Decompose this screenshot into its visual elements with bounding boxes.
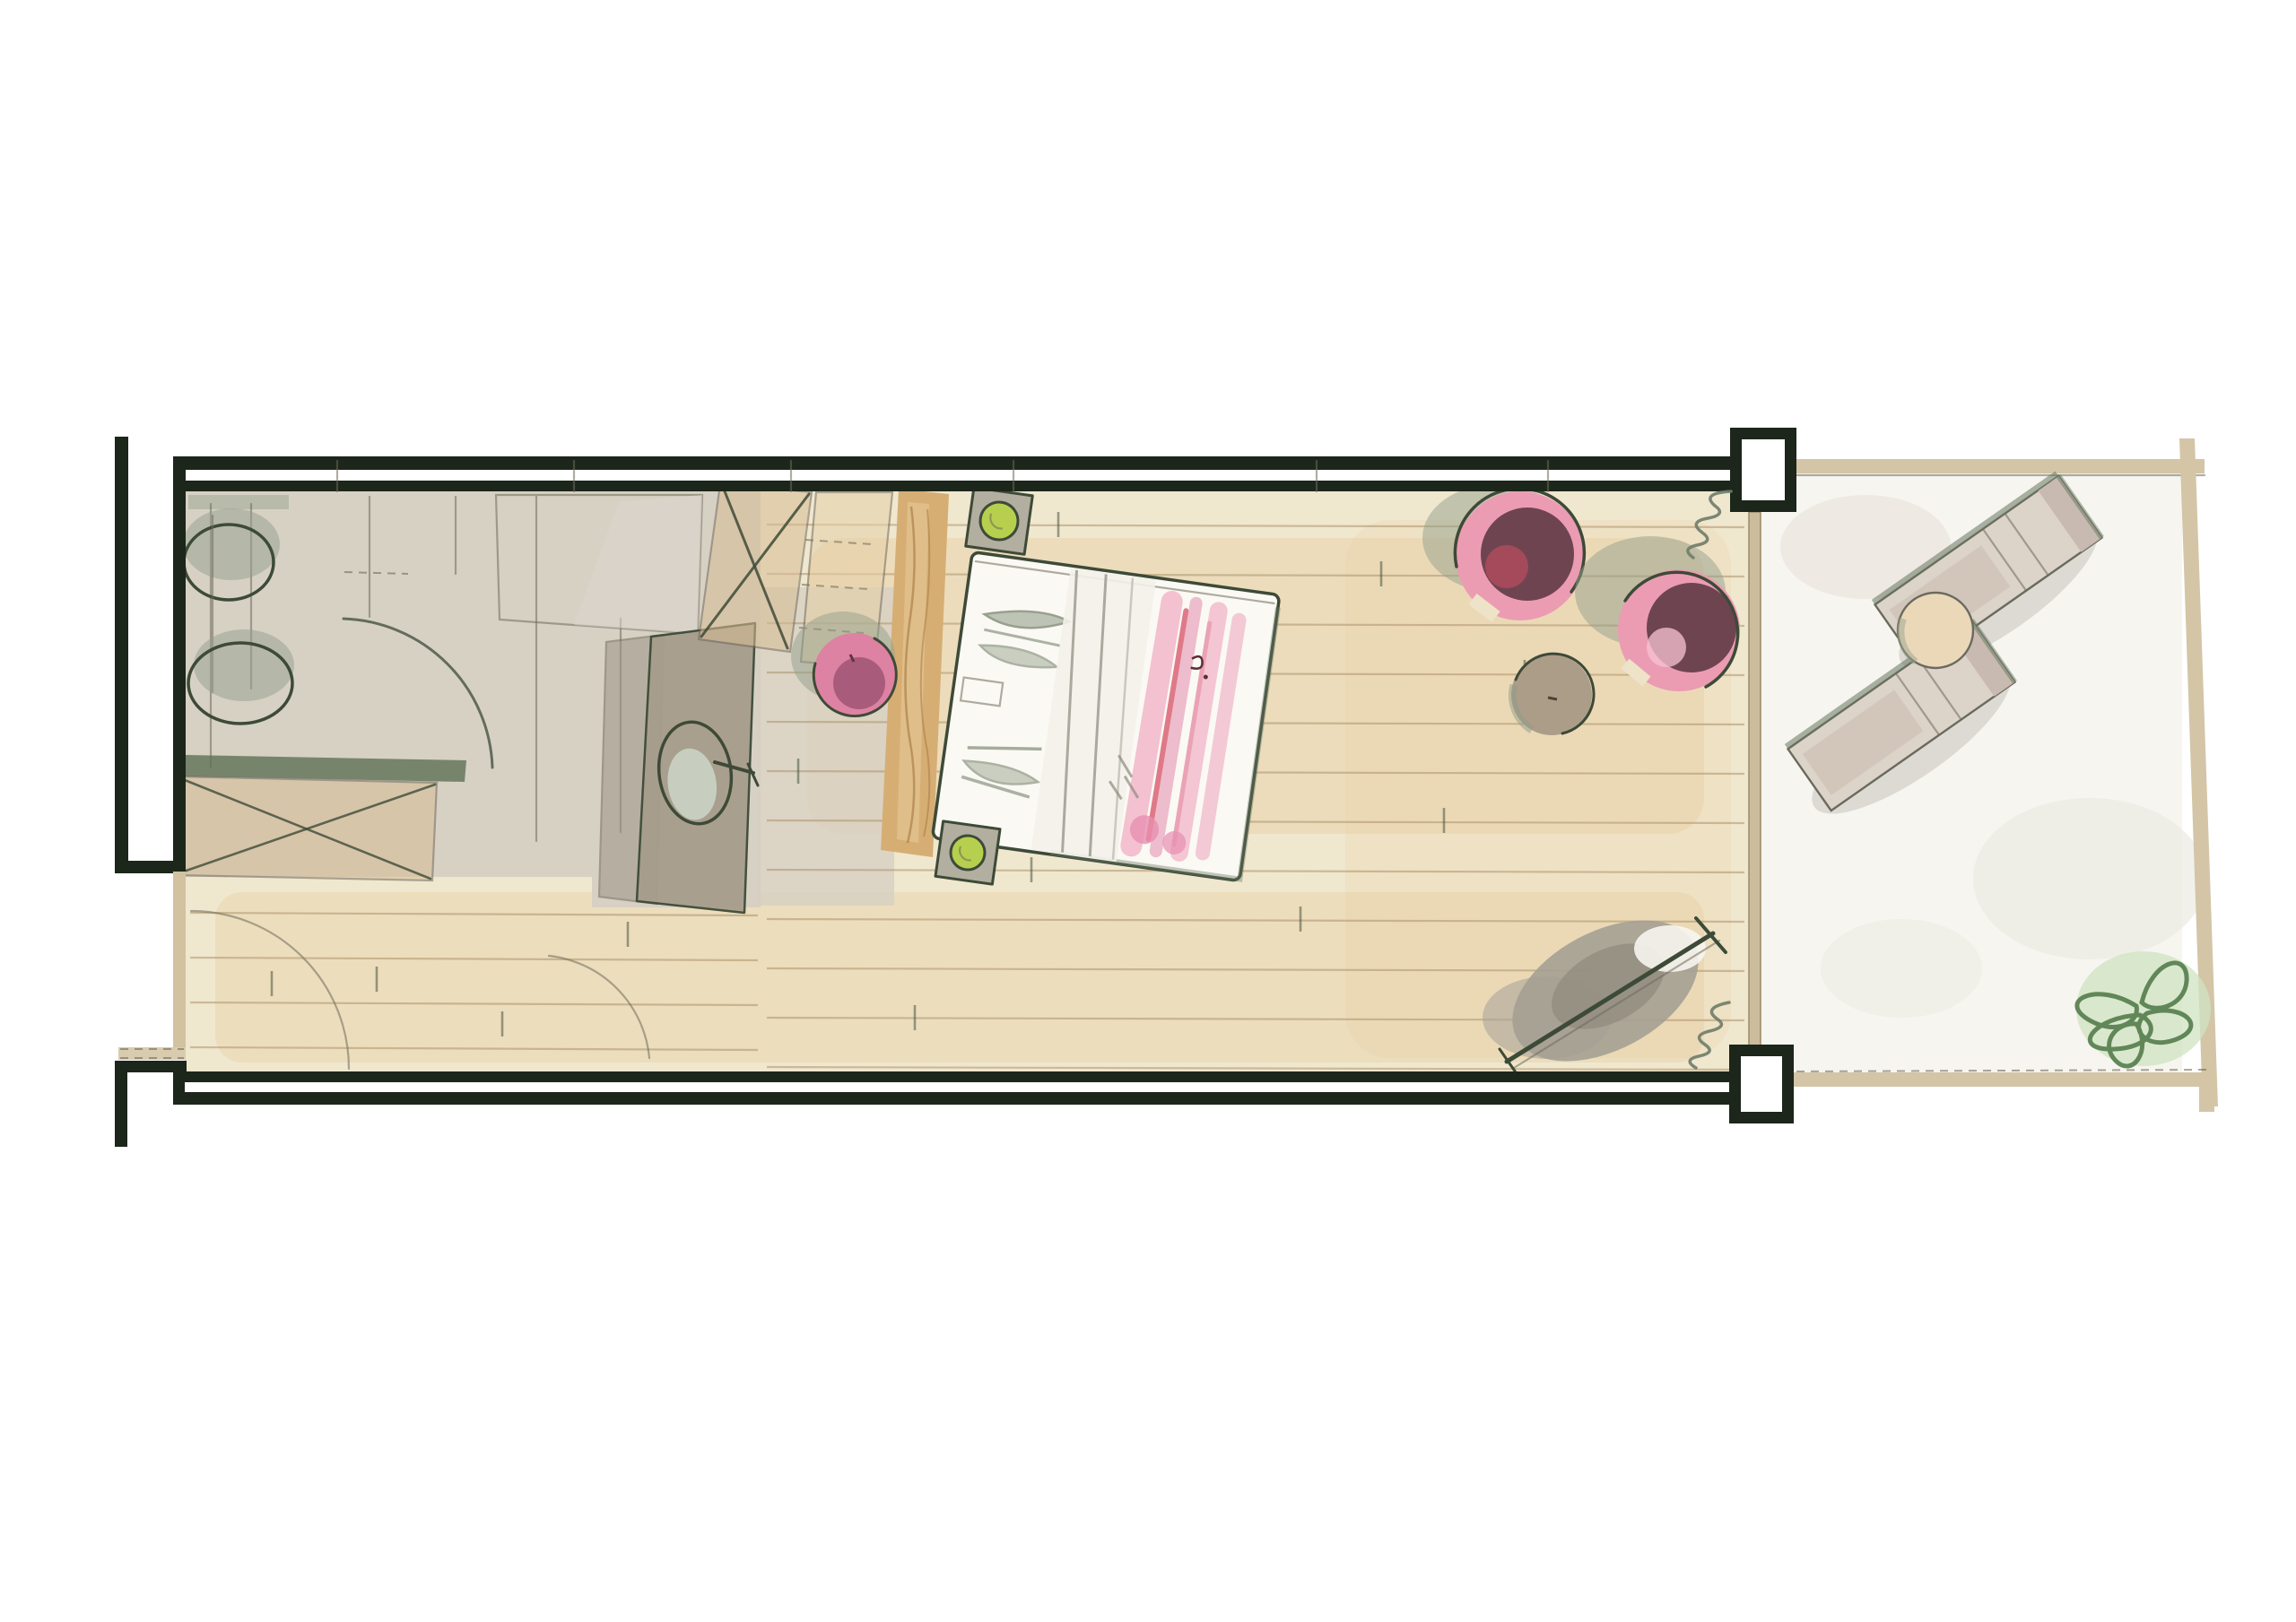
floor-plan-canvas [0,0,2296,1622]
floor-plan-page [0,0,2296,1622]
entry-door-opening [173,872,186,1060]
bottom-wall-connector [173,1071,185,1105]
pillar-top-right [1736,434,1791,507]
potted-plant [2076,951,2211,1066]
top-wall-inner [185,481,1730,491]
nightstand-top [966,488,1033,555]
terrace-border-stub [2199,1087,2214,1112]
terrace-wash-gray [1973,798,2206,959]
pouf-top [833,657,885,709]
terrace-wash-gray-2 [1821,919,1982,1018]
armchair-2-cushion [1647,628,1686,667]
glass-divider [1749,512,1761,1046]
tv-console-highlight [1634,925,1706,972]
toilet-shadow [183,508,280,580]
corridor-wall-bottom-horizontal [115,1061,187,1072]
side-table-mark [1548,698,1557,699]
left-wall [173,456,186,873]
armchair-1-cushion [1485,545,1528,588]
corridor-wall-bottom-vertical [115,1061,127,1147]
pillar-bottom-right [1735,1051,1788,1118]
terrace [1761,438,2218,1112]
terrace-border-top [1796,459,2205,473]
corridor-wall-left [115,437,128,872]
bottom-wall-outer [173,1092,1730,1105]
bathroom-wall-shadow [188,495,289,509]
terrace-border-bottom [1794,1072,2215,1087]
nightstand-bottom [935,821,1000,884]
bottom-wall-inner [185,1071,1730,1082]
bidet-shadow [194,629,294,701]
top-wall-outer [173,456,1730,470]
